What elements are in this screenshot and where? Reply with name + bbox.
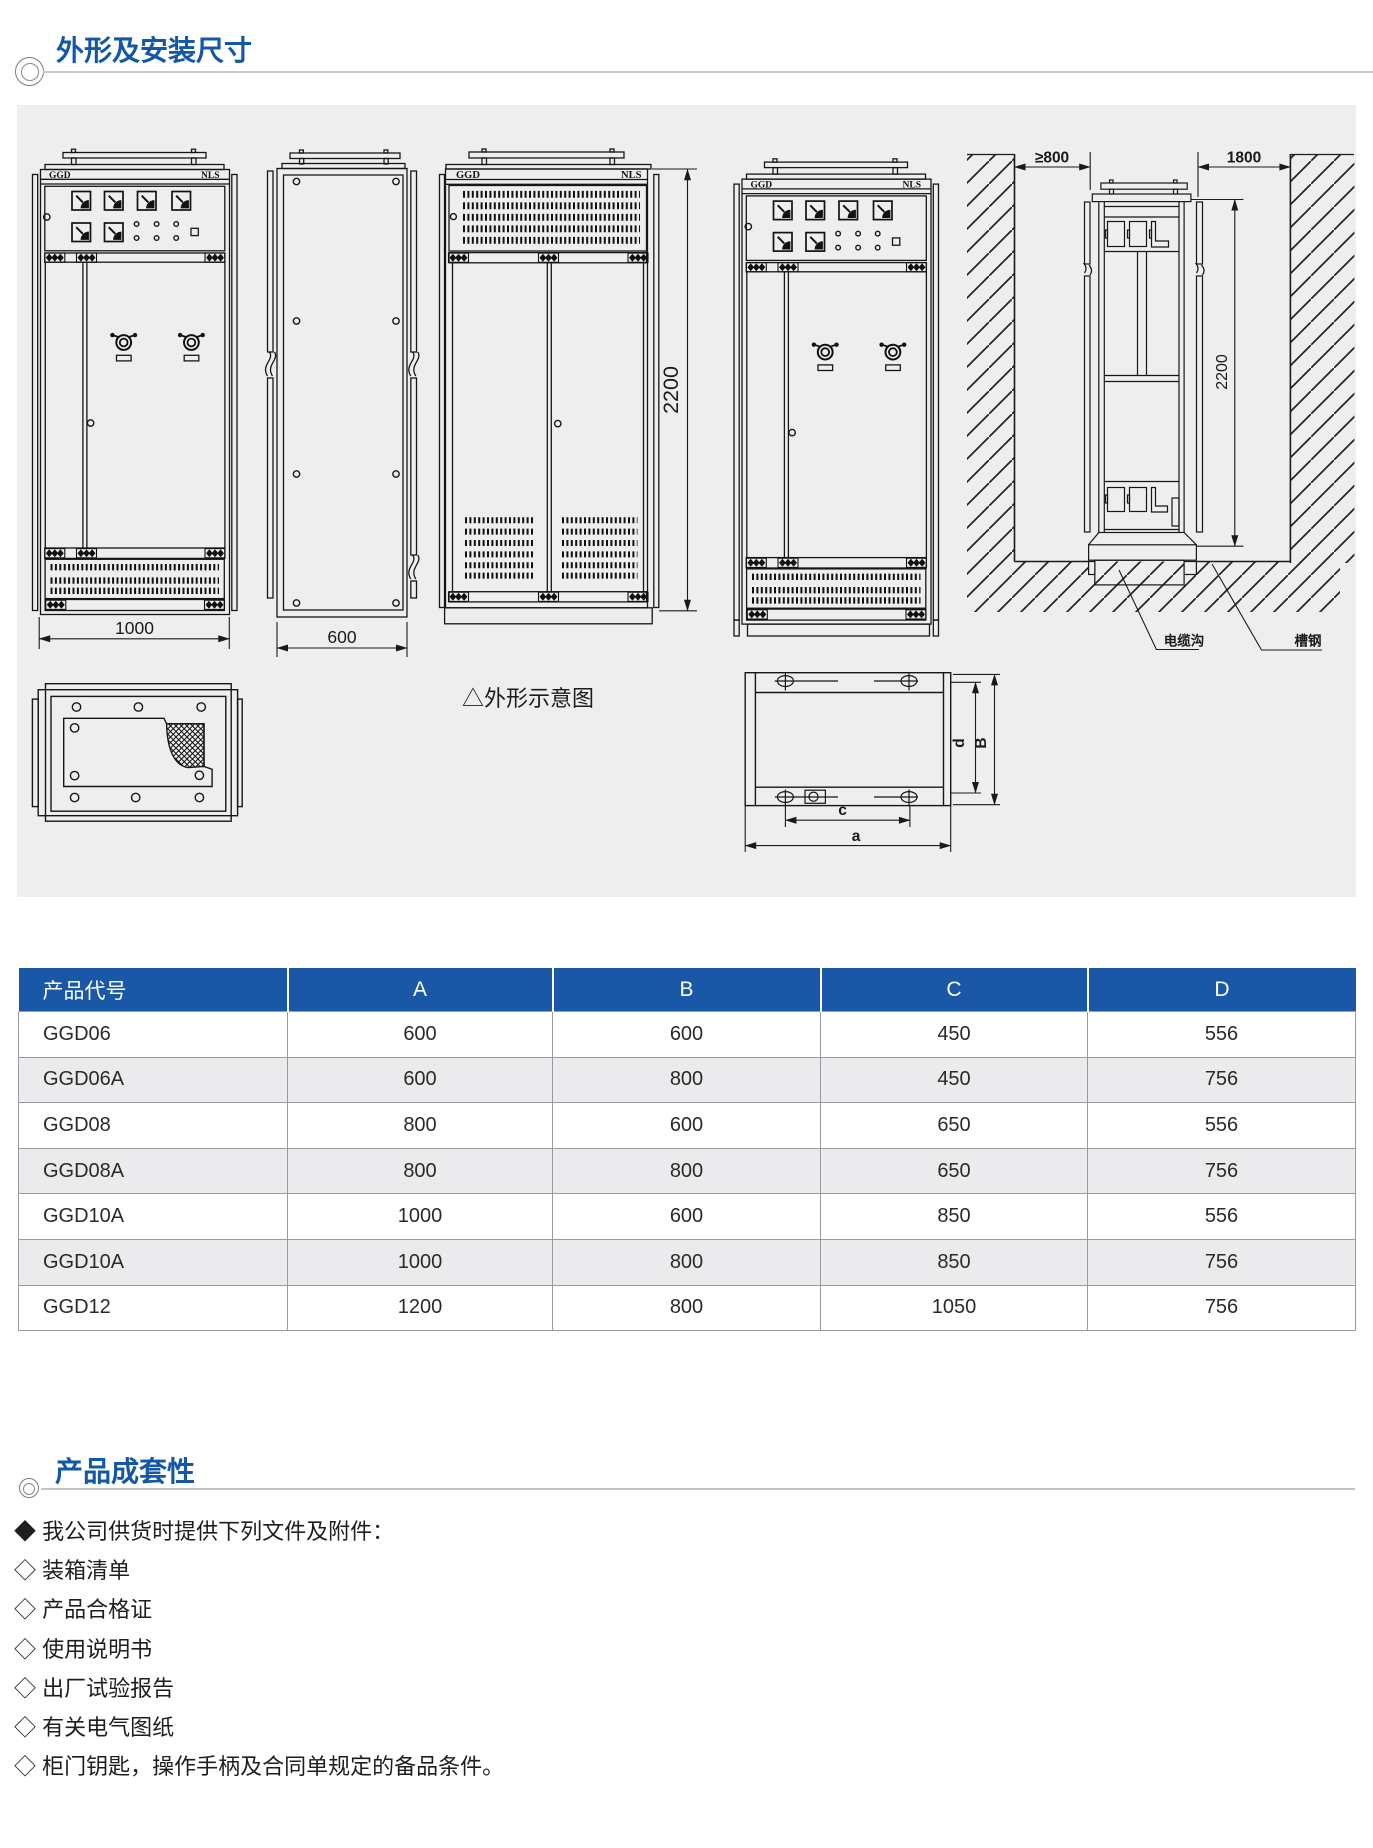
svg-text:a: a xyxy=(852,828,861,845)
svg-text:2200: 2200 xyxy=(659,366,683,414)
svg-text:槽钢: 槽钢 xyxy=(1295,633,1322,649)
svg-text:600: 600 xyxy=(327,627,356,647)
svg-text:1000: 1000 xyxy=(115,618,154,638)
svg-text:2200: 2200 xyxy=(1214,354,1231,390)
svg-text:电缆沟: 电缆沟 xyxy=(1164,633,1205,649)
svg-text:NLS: NLS xyxy=(621,170,642,181)
svg-text:d: d xyxy=(951,738,968,747)
svg-text:NLS: NLS xyxy=(201,171,219,181)
svg-text:GGD: GGD xyxy=(456,170,480,181)
svg-text:GGD: GGD xyxy=(49,171,71,181)
svg-text:B: B xyxy=(973,737,990,748)
svg-text:1800: 1800 xyxy=(1227,150,1261,167)
svg-text:≥800: ≥800 xyxy=(1035,150,1069,167)
svg-text:△外形示意图: △外形示意图 xyxy=(462,686,594,711)
svg-text:c: c xyxy=(838,802,847,819)
